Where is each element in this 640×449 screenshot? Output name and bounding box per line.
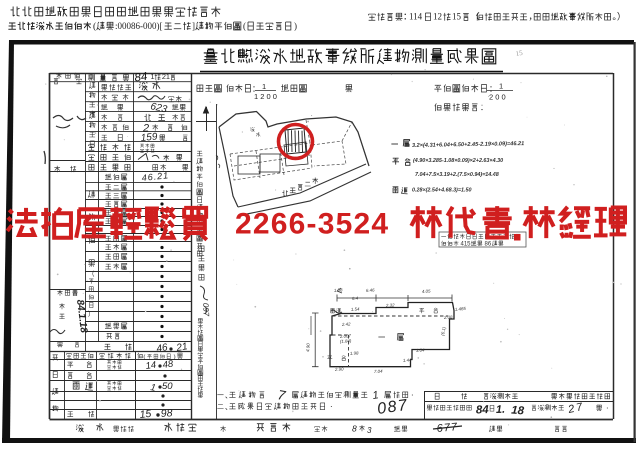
svg-text::00086-000)[: :00086-000)[ xyxy=(115,21,163,31)
svg-text:3: 3 xyxy=(367,426,372,435)
svg-text:6.4: 6.4 xyxy=(352,296,359,301)
svg-text:8: 8 xyxy=(352,424,357,434)
svg-text:15: 15 xyxy=(515,49,524,58)
svg-text:1.54: 1.54 xyxy=(351,306,360,312)
svg-text:14: 14 xyxy=(145,360,157,372)
svg-text:27: 27 xyxy=(566,401,585,416)
svg-text:（: （ xyxy=(88,270,95,278)
svg-text:98: 98 xyxy=(160,407,173,420)
svg-text:·: · xyxy=(411,391,414,400)
svg-text:114: 114 xyxy=(409,12,423,22)
svg-text:): ) xyxy=(294,21,297,31)
svg-text:1.08: 1.08 xyxy=(334,287,344,293)
svg-text:623: 623 xyxy=(149,101,168,115)
svg-text:(1.84): (1.84) xyxy=(340,338,352,344)
svg-text:2.42: 2.42 xyxy=(341,321,351,327)
svg-text:2266-3524: 2266-3524 xyxy=(235,208,389,241)
svg-text:097: 097 xyxy=(201,303,211,317)
svg-text:(: ( xyxy=(144,354,146,361)
svg-text:50: 50 xyxy=(162,381,173,392)
svg-text:、: 、 xyxy=(225,404,232,412)
svg-text:。）: 。） xyxy=(612,12,626,22)
svg-text:）: ） xyxy=(88,310,95,318)
svg-text:1: 1 xyxy=(151,72,155,81)
svg-text:1.98: 1.98 xyxy=(350,350,359,356)
svg-text:415: 415 xyxy=(461,242,472,248)
svg-text:2 0 0: 2 0 0 xyxy=(489,93,506,102)
svg-text:15: 15 xyxy=(452,12,462,22)
svg-text:·: · xyxy=(606,404,609,413)
svg-text:21: 21 xyxy=(162,72,170,81)
svg-text:1.465: 1.465 xyxy=(455,306,467,312)
svg-text:84: 84 xyxy=(134,71,148,85)
svg-text:1: 1 xyxy=(262,82,266,91)
svg-text:86: 86 xyxy=(485,242,492,248)
svg-text:1 2 0 0: 1 2 0 0 xyxy=(254,92,277,101)
svg-text:1: 1 xyxy=(149,382,156,394)
svg-text:159: 159 xyxy=(140,132,158,144)
svg-text:7: 7 xyxy=(276,387,286,403)
svg-text:]: ] xyxy=(192,21,195,31)
svg-text:(: ( xyxy=(93,21,96,32)
svg-text:2.32: 2.32 xyxy=(385,303,395,309)
svg-text:3.04: 3.04 xyxy=(416,347,425,353)
svg-text:7.04: 7.04 xyxy=(374,369,383,374)
svg-text:4.05: 4.05 xyxy=(422,289,431,294)
svg-text:6.46: 6.46 xyxy=(366,288,375,293)
svg-text:12: 12 xyxy=(433,12,442,22)
svg-text:2.08: 2.08 xyxy=(443,314,453,320)
svg-text:3.2×(4.31+6.04+6.50+2.45-2.19×: 3.2×(4.31+6.04+6.50+2.45-2.19×0.09)=46.2… xyxy=(412,141,524,149)
svg-text:15: 15 xyxy=(139,408,152,421)
svg-text:46: 46 xyxy=(156,342,169,355)
svg-text:(: ( xyxy=(243,21,246,31)
svg-text:(4.90×3.285-1.08×0.09)×2+2.63×: (4.90×3.285-1.08×0.09)×2+2.63×4.30 xyxy=(413,158,503,164)
svg-text:、: 、 xyxy=(225,392,232,400)
svg-text:：: ： xyxy=(480,103,488,112)
svg-text:0.28×(2.54+4.68.3)=1.50: 0.28×(2.54+4.68.3)=1.50 xyxy=(412,188,472,194)
svg-text:1.: 1. xyxy=(496,404,506,416)
svg-text:46.21: 46.21 xyxy=(141,170,169,183)
svg-text:(6.1): (6.1) xyxy=(440,326,447,336)
svg-text:84: 84 xyxy=(476,404,490,416)
svg-text:2.90: 2.90 xyxy=(334,367,344,373)
svg-text:4.90: 4.90 xyxy=(305,343,311,353)
svg-text:18: 18 xyxy=(511,405,525,418)
svg-text:21: 21 xyxy=(175,341,189,354)
svg-text:（: （ xyxy=(471,12,480,22)
svg-text:087: 087 xyxy=(376,397,409,418)
svg-text:·: · xyxy=(330,403,333,412)
svg-text:): ) xyxy=(174,354,176,361)
svg-text:84.1.18: 84.1.18 xyxy=(74,299,89,334)
svg-text:1: 1 xyxy=(499,82,503,91)
svg-text:，: ， xyxy=(528,12,537,22)
svg-text:1.44: 1.44 xyxy=(403,357,412,363)
